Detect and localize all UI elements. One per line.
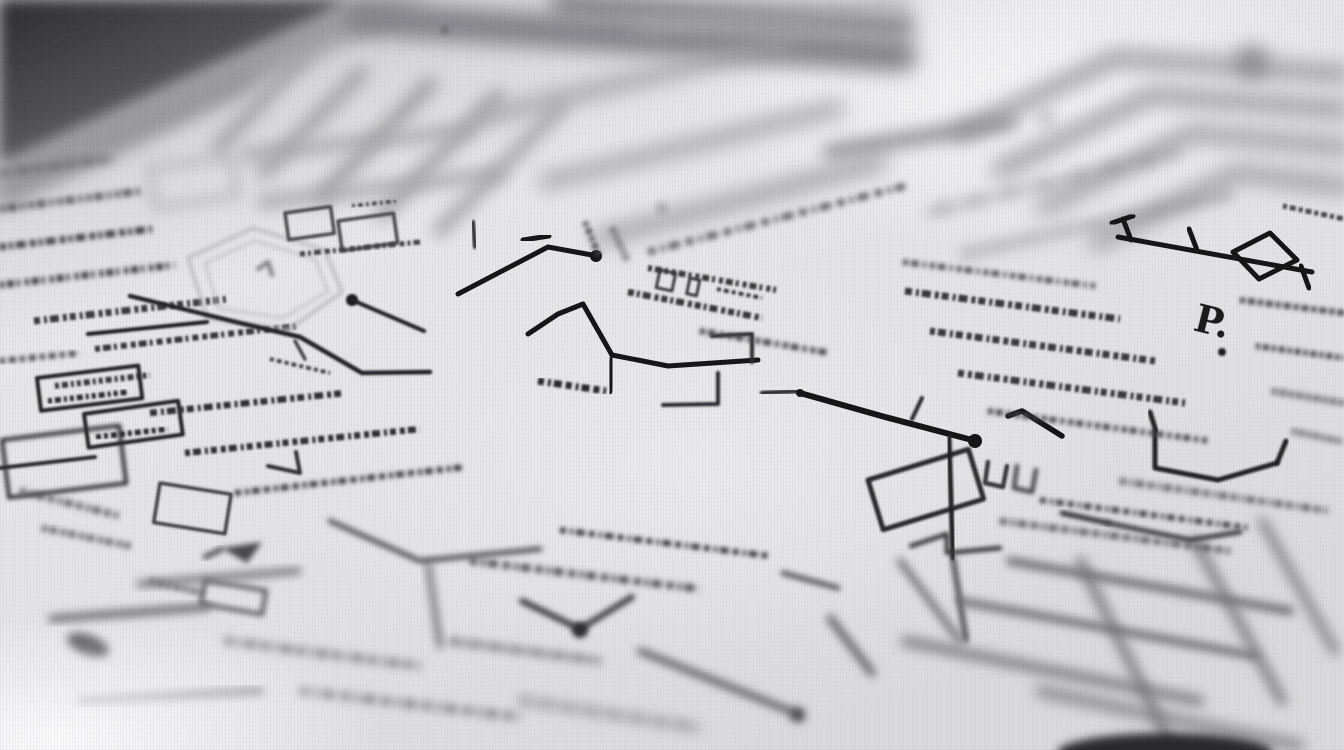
schematic-shapes: P. (0, 0, 1344, 750)
trace-stub (610, 357, 612, 392)
junction-dot (572, 622, 588, 638)
ink-dot (1218, 348, 1226, 356)
paper-sheen-center (270, 260, 1130, 680)
trace-bracket (762, 391, 800, 393)
junction-dot (791, 708, 805, 722)
junction-dot (796, 389, 804, 397)
ink-speck (441, 26, 449, 34)
ink-speck (658, 204, 666, 212)
trace-stub (473, 222, 475, 247)
blur-speck (1040, 112, 1052, 124)
schematic-macro-photo: P. (0, 0, 1344, 750)
junction-dot (968, 434, 982, 448)
blur-blob (1236, 46, 1268, 78)
schematic-photo-canvas: P. (0, 0, 1344, 750)
